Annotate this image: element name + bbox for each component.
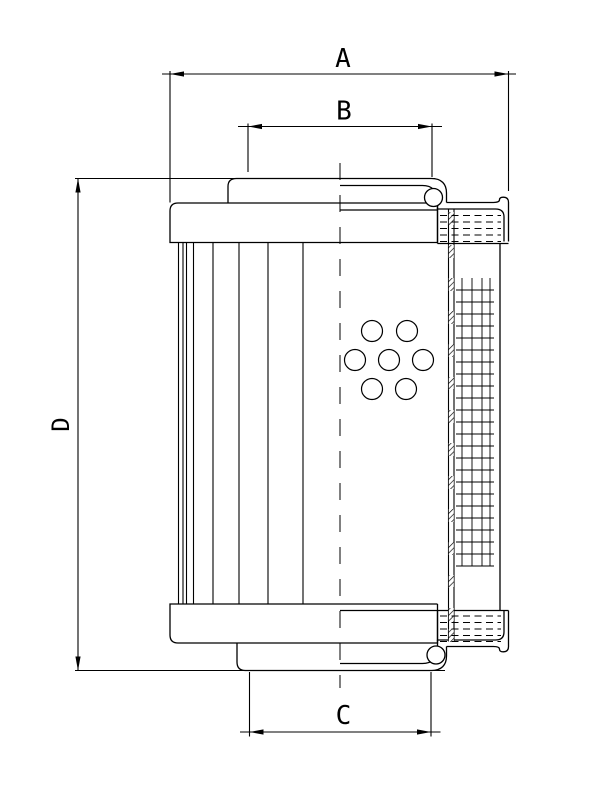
hatch-block: [449, 278, 454, 291]
tube-hatch-blocks: [449, 212, 454, 642]
dim-arrow-a: [170, 71, 184, 76]
hatch-block: [449, 245, 454, 258]
element-outline: [75, 179, 509, 671]
dim-arrow-d: [75, 179, 80, 193]
support-mesh: [456, 278, 494, 566]
core-hole: [413, 350, 434, 371]
dim-arrow-d: [75, 657, 80, 671]
core-hole: [345, 350, 366, 371]
dim-arrow-a: [495, 71, 509, 76]
core-hole: [397, 321, 418, 342]
hatch-block: [449, 410, 454, 423]
core-hole: [362, 321, 383, 342]
hatch-block: [449, 509, 454, 522]
hatch-block: [449, 311, 454, 324]
top-tab-inner-sheet: [340, 186, 438, 210]
dim-arrow-b: [248, 124, 262, 129]
dim-arrow-c: [417, 729, 431, 734]
top-tab-outline: [228, 179, 447, 204]
hatch-block: [449, 443, 454, 456]
dim-label-c: C: [336, 701, 352, 731]
dim-arrow-c: [250, 729, 264, 734]
hatch-block: [449, 344, 454, 357]
bottom-flange-outer: [447, 611, 509, 652]
dim-label-a: A: [335, 44, 351, 74]
core-hole: [362, 379, 383, 400]
hatch-block: [449, 476, 454, 489]
top-flange-inner: [438, 209, 505, 244]
hatch-block: [449, 575, 454, 588]
bottom-flange-inner: [438, 611, 505, 641]
top-end-cap: [170, 203, 438, 243]
hatch-block: [449, 542, 454, 555]
dim-label-d: D: [47, 417, 75, 431]
oring-seal-top: [425, 189, 443, 207]
core-hole: [379, 350, 400, 371]
core-tube-holes: [345, 321, 434, 400]
dim-arrow-b: [418, 124, 432, 129]
bottom-collar-outline: [237, 643, 447, 671]
dim-label-b: B: [336, 97, 352, 127]
filter-element-technical-drawing: A B C D: [0, 0, 612, 792]
hatch-block: [449, 212, 454, 225]
pleat-lines: [179, 243, 304, 605]
hatch-block: [449, 608, 454, 621]
core-hole: [396, 379, 417, 400]
hatch-block: [449, 377, 454, 390]
oring-seal-bottom: [427, 646, 445, 664]
